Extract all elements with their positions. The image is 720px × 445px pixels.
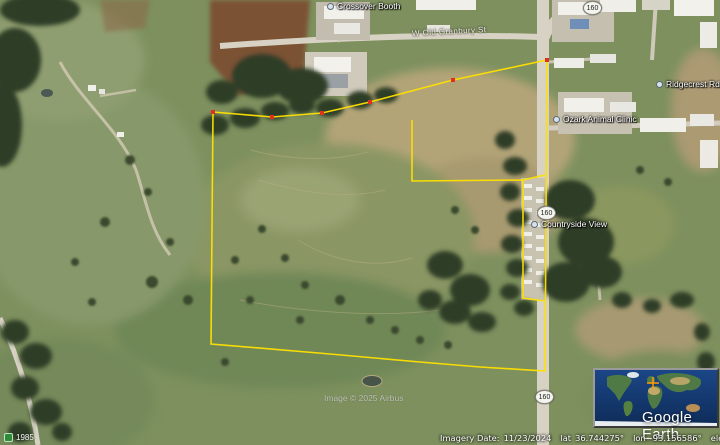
elev-label: elev: [711, 433, 720, 443]
poi-icon: [327, 3, 334, 10]
poi-label-booth[interactable]: Crossover Booth: [327, 2, 400, 11]
map-canvas[interactable]: Crossover Booth W Old Granbury St Ozark …: [0, 0, 720, 445]
route-number: 160: [587, 5, 599, 12]
lat-value: 36.744275°: [575, 433, 624, 443]
poi-label-text: Crossover Booth: [337, 2, 400, 11]
route-number: 160: [539, 394, 551, 401]
poi-icon: [656, 81, 663, 88]
year-placemark[interactable]: 1985: [4, 433, 34, 442]
placemark-icon: [4, 433, 13, 442]
poi-label-text: Ridgecrest Rd: [666, 80, 720, 89]
poi-label-ridge[interactable]: Ridgecrest Rd: [656, 80, 720, 89]
poi-icon: [531, 221, 538, 228]
poi-label-text: Countryside View: [541, 220, 607, 229]
lon-label: lon: [633, 433, 646, 443]
route-number: 160: [541, 210, 553, 217]
poi-label-text: Ozark Animal Clinic: [563, 115, 637, 124]
lon-value: -93.156586°: [650, 433, 702, 443]
year-text: 1985: [16, 433, 34, 442]
imagery-attribution: Image © 2025 Airbus: [324, 393, 404, 403]
route-shield-bottom: 160: [535, 390, 554, 404]
route-shield-mid: 160: [537, 206, 556, 220]
poi-icon: [553, 116, 560, 123]
route-shield-top: 160: [583, 1, 602, 15]
lat-label: lat: [560, 433, 571, 443]
poi-label-clinic[interactable]: Ozark Animal Clinic: [553, 115, 637, 124]
poi-label-countryside[interactable]: Countryside View: [531, 220, 607, 229]
status-bar: Imagery Date: 11/23/2024 lat 36.744275° …: [440, 433, 720, 443]
imagery-date-label: Imagery Date:: [440, 433, 500, 443]
imagery-date-value: 11/23/2024: [504, 433, 552, 443]
